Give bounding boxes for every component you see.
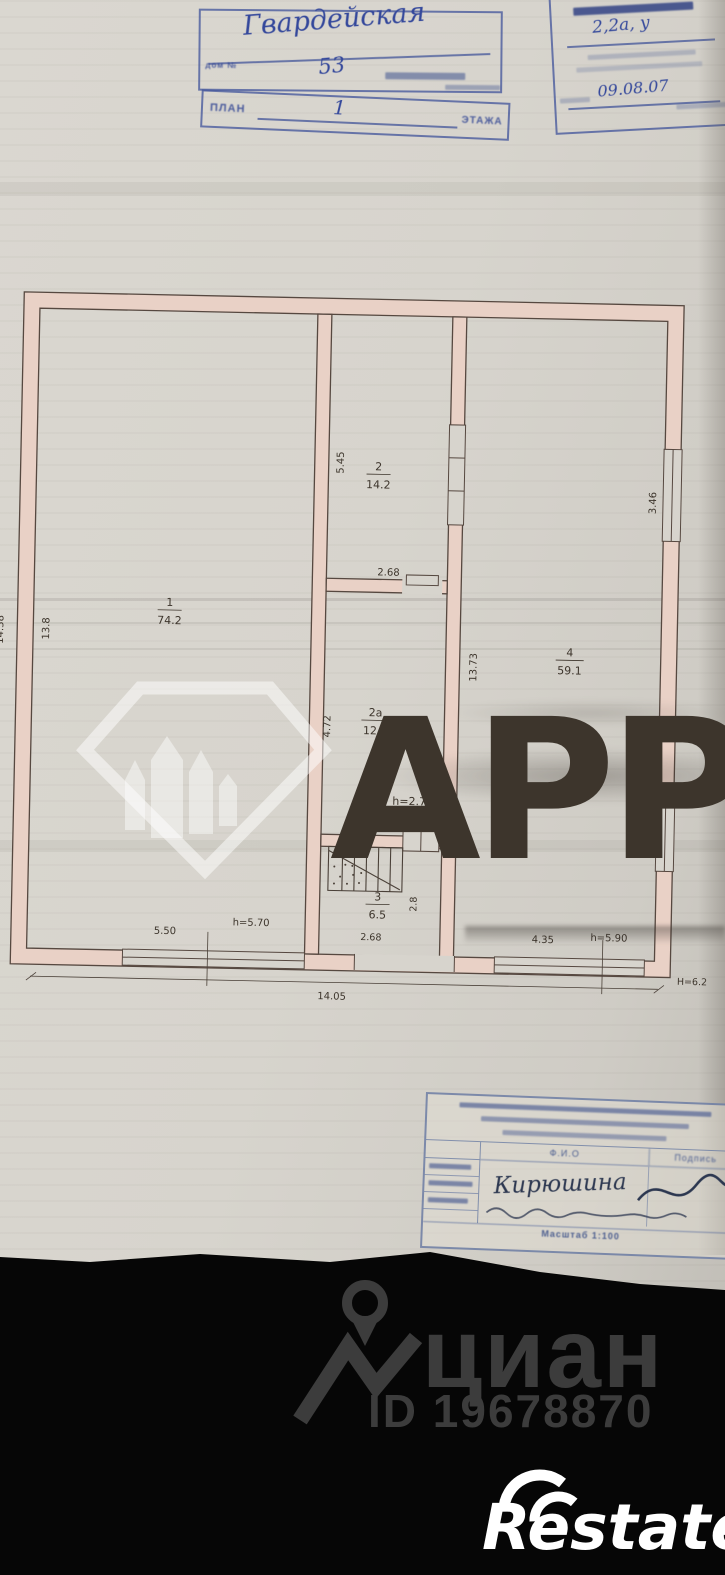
room-area: 74.2 bbox=[157, 614, 182, 628]
room-area: 59.1 bbox=[557, 664, 582, 678]
walls bbox=[10, 292, 684, 978]
title-block-stamp: Ф.И.О Подпись Кирюшина bbox=[420, 1092, 725, 1260]
extension-tick bbox=[207, 932, 208, 986]
door-leaf bbox=[406, 575, 438, 586]
illegible-header-line bbox=[459, 1102, 711, 1117]
outer-wall bbox=[10, 292, 684, 978]
illegible-row-label bbox=[428, 1180, 472, 1187]
room-area: 14.2 bbox=[366, 478, 391, 492]
dim-room2-height: 5.45 bbox=[336, 451, 347, 473]
illegible-header-line bbox=[502, 1130, 666, 1141]
door-opening bbox=[354, 954, 454, 972]
illegible-header-line bbox=[481, 1116, 689, 1129]
row-label-cell bbox=[424, 1192, 479, 1211]
address-stamp: Гвардейская дом № 53 ПЛАН 1 ЭТАЖА bbox=[190, 0, 513, 138]
dim-room3-width: 2.68 bbox=[360, 932, 381, 943]
date-handwritten: 09.08.07 bbox=[597, 76, 670, 101]
room-number: 1 bbox=[166, 596, 173, 609]
form-line bbox=[567, 38, 715, 47]
dim-bottom-left: 5.50 bbox=[154, 926, 176, 937]
overall-dim-line bbox=[30, 976, 658, 989]
dim-room3-height: 2.8 bbox=[408, 897, 419, 912]
dim-bottom-left-height: h=5.70 bbox=[233, 917, 270, 929]
row-label-cell bbox=[425, 1158, 480, 1177]
room-number: 2 bbox=[375, 460, 382, 473]
window bbox=[448, 425, 466, 525]
room-labels: 1 74.2 2 14.2 2а 12.3 3 6.5 4 59.1 bbox=[151, 456, 588, 926]
cian-listing-id: ID 19678870 bbox=[368, 1388, 653, 1434]
scanned-floorplan-photo: { "stamps": { "address": { "street": "Гв… bbox=[0, 0, 725, 1575]
dim-window-right-top: 3.46 bbox=[648, 492, 659, 514]
corner-cell bbox=[425, 1140, 481, 1160]
plan-label: ПЛАН bbox=[210, 102, 246, 116]
extension-tick bbox=[602, 940, 603, 994]
form-line bbox=[258, 118, 458, 128]
dim-bottom-right: 4.35 bbox=[532, 935, 554, 946]
form-line bbox=[208, 53, 490, 64]
floor-label: ЭТАЖА bbox=[461, 115, 503, 128]
object-value-handwritten: 2,2а, у bbox=[591, 13, 650, 38]
windows-and-doors bbox=[122, 418, 682, 976]
address-stamp-box: Гвардейская дом № 53 bbox=[198, 9, 503, 94]
floor-number-handwritten: 1 bbox=[333, 95, 347, 120]
floor-plan-svg: 1 74.2 2 14.2 2а 12.3 3 6.5 4 59.1 14.38… bbox=[0, 275, 725, 1030]
illegible-print-line bbox=[588, 49, 696, 60]
interior-wall-left bbox=[304, 314, 331, 954]
ink-scribble bbox=[385, 72, 465, 80]
dim-opening: 0.60 bbox=[366, 810, 387, 820]
executor-name-handwritten: Кирюшина bbox=[493, 1169, 627, 1199]
illegible-row-label bbox=[428, 1197, 468, 1204]
staircase bbox=[328, 846, 403, 892]
dim-room2a-height: 4.72 bbox=[322, 715, 333, 737]
dim-total-width: 14.05 bbox=[317, 991, 346, 1003]
room-area: 12.3 bbox=[363, 724, 388, 738]
dim-ceiling-height: h=2.70 bbox=[392, 795, 433, 809]
row-label-cell bbox=[424, 1175, 479, 1194]
interior-wall-right bbox=[439, 317, 466, 957]
illegible-row-label bbox=[429, 1163, 471, 1170]
room-number: 3 bbox=[374, 890, 381, 903]
street-name-handwritten: Гвардейская bbox=[242, 0, 427, 42]
restate-wordmark: Restate bbox=[482, 1496, 725, 1559]
floor-plan: 1 74.2 2 14.2 2а 12.3 3 6.5 4 59.1 14.38… bbox=[0, 275, 725, 1030]
dimension-labels: 14.38 13.8 5.45 2.68 4.72 h=2.70 0.60 2.… bbox=[0, 444, 718, 1010]
room-number: 4 bbox=[566, 646, 573, 659]
dim-room2-width: 2.68 bbox=[377, 567, 399, 578]
room-area: 6.5 bbox=[368, 908, 386, 921]
title-block-table: Ф.И.О Подпись Кирюшина bbox=[422, 1139, 725, 1249]
house-number-handwritten: 53 bbox=[317, 53, 346, 79]
room-number: 2а bbox=[369, 706, 383, 719]
paper-edge-shadow bbox=[698, 0, 725, 1255]
dim-left-inner: 13.8 bbox=[41, 617, 52, 639]
dim-room4-height: 13.73 bbox=[468, 653, 480, 682]
row-label-column bbox=[423, 1158, 480, 1223]
illegible-print-line bbox=[576, 61, 702, 73]
illegible-print-line bbox=[560, 97, 590, 104]
signature-area: Кирюшина bbox=[478, 1160, 725, 1230]
ink-scribble bbox=[445, 85, 500, 90]
dim-left-outer: 14.38 bbox=[0, 615, 7, 644]
dim-bottom-right-height: h=5.90 bbox=[590, 933, 627, 945]
dim-window-right-bottom: 3.46 bbox=[643, 794, 654, 816]
house-number-label: дом № bbox=[205, 61, 237, 70]
